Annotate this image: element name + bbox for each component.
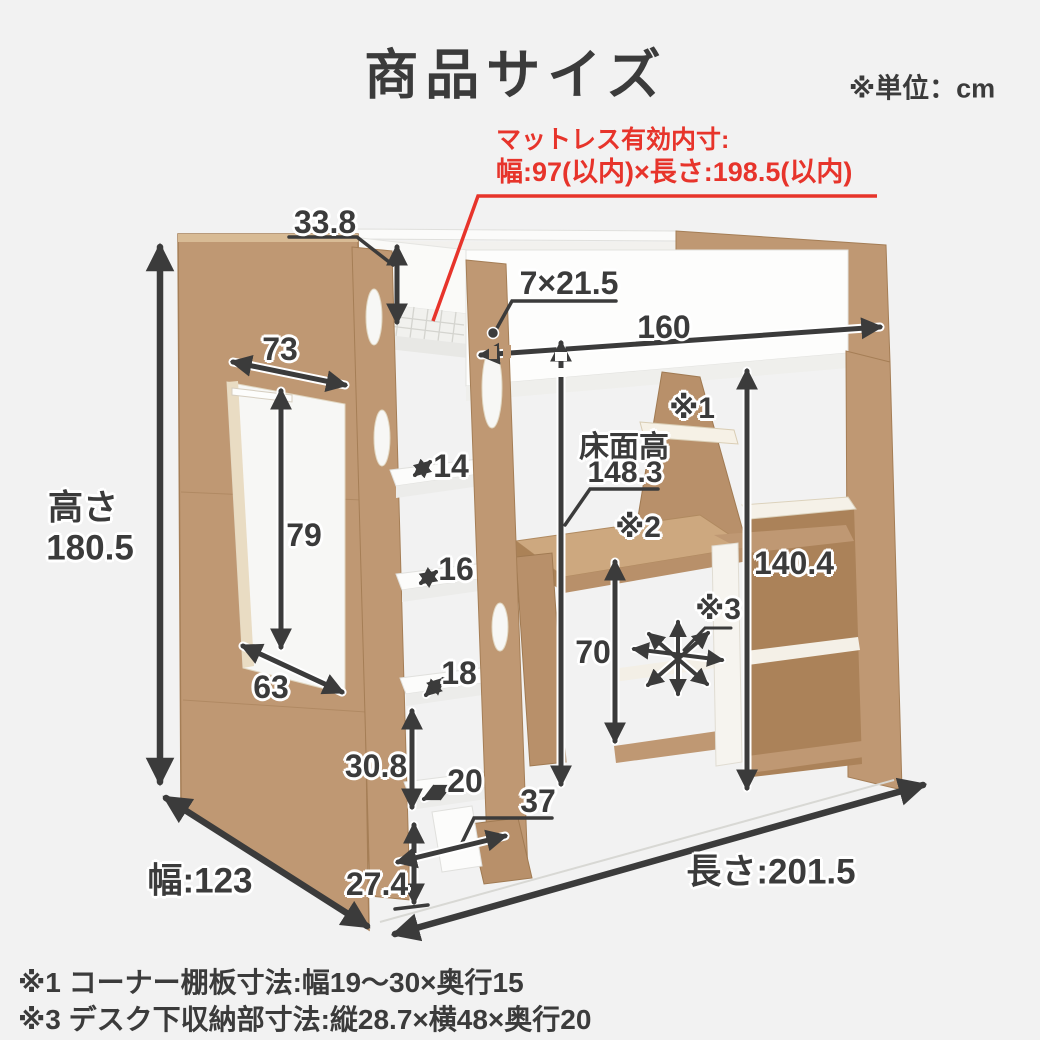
mattress-note-line2: 幅:97(以内)×長さ:198.5(以内) <box>496 159 852 186</box>
storage-divider <box>712 543 742 766</box>
dim-opening-height: 79 <box>286 519 322 551</box>
dim-ladder-foot-depth: 37 <box>520 785 556 817</box>
dim-under-bed-clearance: 140.4 <box>754 547 834 579</box>
dim-step-gap-3: 18 <box>441 657 477 689</box>
under-desk-bottom <box>614 731 720 763</box>
unit-note: ※単位：cm <box>849 67 995 106</box>
dim-floor-height: 148.3 <box>587 458 662 488</box>
dim-overall-height: 180.5 <box>46 531 134 566</box>
dim-top-depth: 33.8 <box>294 206 356 238</box>
dim-opening-bottom-width: 63 <box>253 671 289 703</box>
page-title: 商品サイズ <box>364 31 667 110</box>
rail-handle-hole <box>482 348 502 428</box>
handle-leader-dot <box>488 328 499 339</box>
dim-fence-length: 160 <box>637 311 690 343</box>
back-fence <box>352 229 676 241</box>
rail-handle-hole <box>374 410 390 466</box>
dim-ladder-bottom: 27.4 <box>346 868 408 900</box>
ref1-marker: ※1 <box>669 394 715 424</box>
rail-handle-hole <box>366 289 382 345</box>
dim-overall-width: 幅:123 <box>147 864 252 899</box>
ref3-marker: ※3 <box>695 595 741 625</box>
rail-handle-hole <box>492 603 508 651</box>
arrow-dash-gap <box>489 346 497 359</box>
dim-step-gap-1: 14 <box>433 450 469 482</box>
dim-overall-height-label: 高さ <box>48 491 118 526</box>
dim-step-gap-4: 20 <box>447 765 483 797</box>
ladder-bottom-tick <box>395 905 428 909</box>
dim-ladder-lower: 30.8 <box>345 750 407 782</box>
dim-overall-length: 長さ:201.5 <box>686 855 855 890</box>
arrow-dash-gap <box>555 368 567 377</box>
footnote-1: ※1 コーナー棚板寸法:幅19～30×奥行15 <box>18 961 524 1001</box>
arrow-dash-gap <box>503 345 511 358</box>
product-size-diagram: 商品サイズ ※単位：cm マットレス有効内寸: 幅:97(以内)×長さ:198.… <box>0 0 1040 1040</box>
ref2-marker: ※2 <box>615 513 661 543</box>
dim-opening-top-width: 73 <box>262 333 298 365</box>
dim-desk-height: 70 <box>575 636 611 668</box>
dim-handle-cutout: 7×21.5 <box>520 267 619 299</box>
footnote-2: ※3 デスク下収納部寸法:縦28.7×横48×奥行20 <box>18 998 591 1038</box>
mattress-note-line1: マットレス有効内寸: <box>496 128 729 153</box>
arrow-dash-gap <box>555 352 567 361</box>
dim-step-gap-2: 16 <box>438 553 474 585</box>
